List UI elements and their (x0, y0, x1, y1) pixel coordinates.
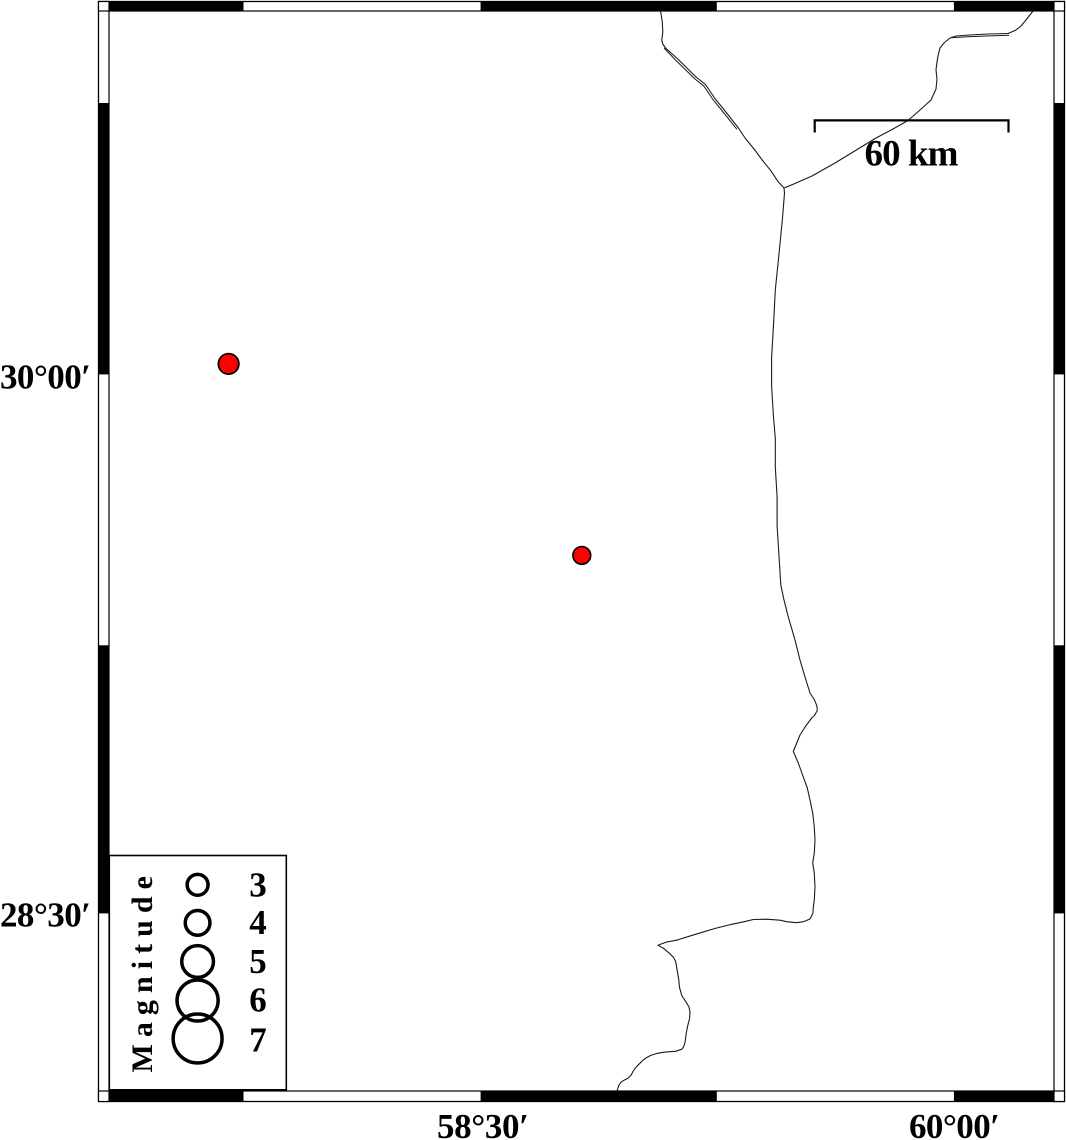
svg-text:60 km: 60 km (865, 133, 959, 174)
svg-text:4: 4 (249, 903, 267, 942)
svg-text:5: 5 (249, 942, 267, 981)
svg-text:30°00′: 30°00′ (0, 358, 91, 397)
svg-text:58°30′: 58°30′ (437, 1107, 529, 1140)
svg-text:6: 6 (249, 980, 267, 1019)
svg-text:28°30′: 28°30′ (0, 896, 91, 935)
svg-text:7: 7 (249, 1020, 267, 1059)
svg-text:60°00′: 60°00′ (909, 1107, 1000, 1140)
svg-text:3: 3 (249, 865, 267, 904)
